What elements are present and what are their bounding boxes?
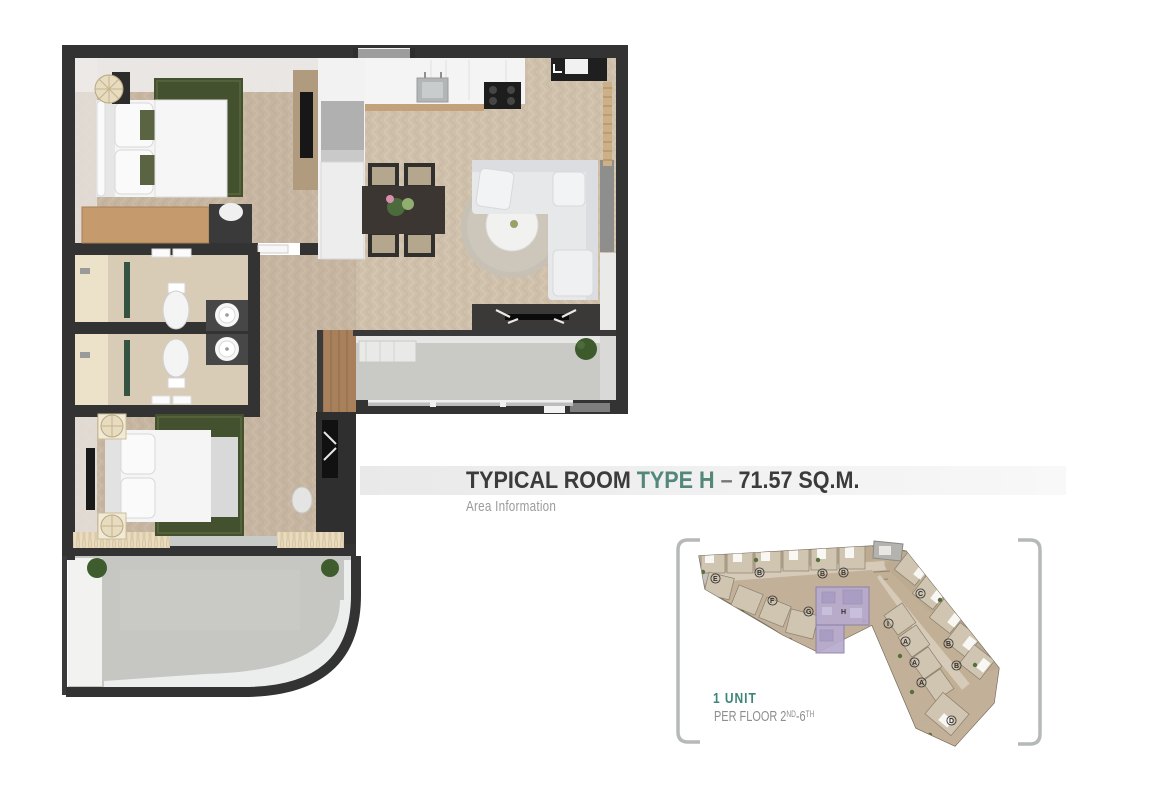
svg-text:B: B [954, 663, 959, 670]
svg-text:A: A [919, 680, 924, 687]
svg-text:C: C [918, 591, 923, 598]
svg-text:E: E [713, 576, 718, 583]
svg-text:H: H [841, 609, 846, 616]
svg-text:F: F [770, 598, 775, 605]
svg-text:TYPICAL ROOM TYPE H – 71.57 SQ: TYPICAL ROOM TYPE H – 71.57 SQ.M. [466, 466, 859, 493]
svg-text:D: D [949, 718, 954, 725]
svg-text:PER FLOOR 2ND-6TH: PER FLOOR 2ND-6TH [714, 707, 815, 724]
svg-text:I: I [887, 621, 889, 628]
svg-text:1 UNIT: 1 UNIT [713, 690, 757, 707]
svg-text:A: A [912, 660, 917, 667]
svg-text:A: A [903, 639, 908, 646]
svg-text:Area Information: Area Information [466, 498, 556, 515]
svg-text:B: B [820, 571, 825, 578]
svg-text:B: B [757, 570, 762, 577]
svg-text:B: B [946, 641, 951, 648]
svg-text:B: B [841, 570, 846, 577]
